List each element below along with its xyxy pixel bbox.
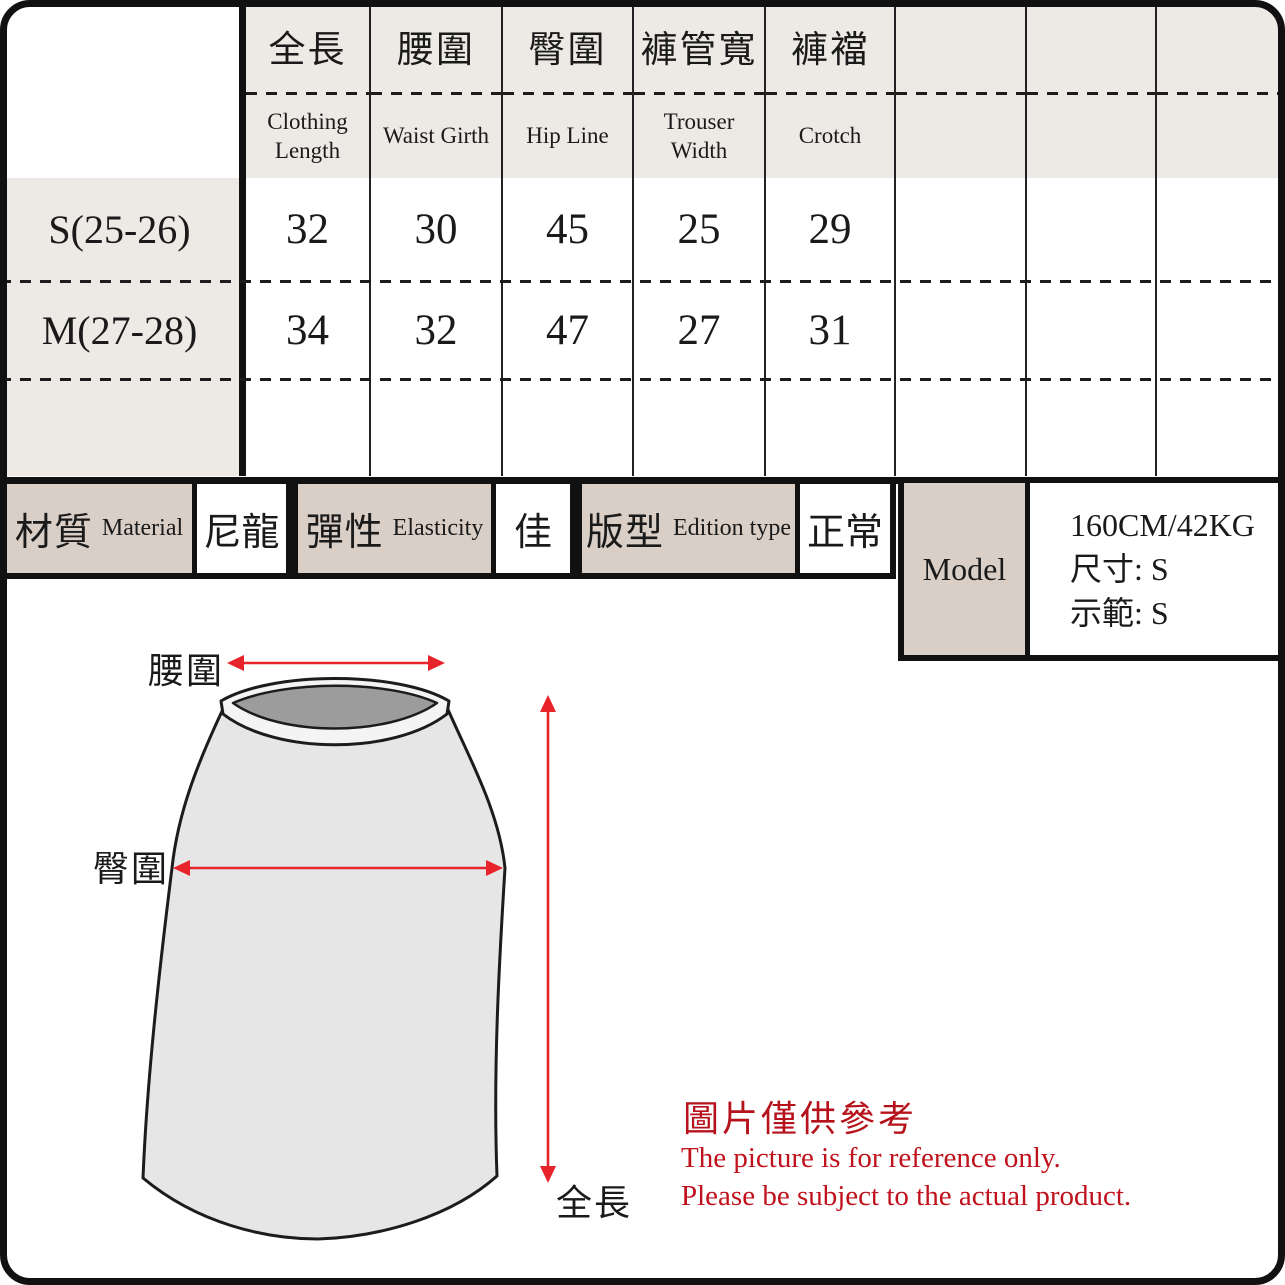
model-stats: 160CM/42KG bbox=[1070, 509, 1279, 541]
attribute-elasticity: 彈性 Elasticity 佳 bbox=[292, 484, 576, 579]
cell-value bbox=[766, 379, 896, 476]
cell-value bbox=[1157, 379, 1285, 476]
cell-value bbox=[1027, 281, 1157, 379]
attribute-label-en: Material bbox=[102, 515, 183, 542]
attribute-label-zh: 材質 bbox=[15, 501, 93, 556]
column-header-zh bbox=[896, 0, 1025, 92]
attribute-edition-type: 版型 Edition type 正常 bbox=[576, 484, 896, 579]
column-header-empty bbox=[896, 0, 1027, 178]
row-size-label: S(25-26) bbox=[0, 178, 246, 281]
waist-measure-label: 腰圍 bbox=[148, 642, 224, 694]
column-header-en bbox=[896, 95, 1025, 178]
cell-value: 45 bbox=[503, 178, 634, 281]
column-header-waist-girth: 腰圍 Waist Girth bbox=[371, 0, 503, 178]
cell-value: 32 bbox=[246, 178, 371, 281]
dashed-row-separator bbox=[0, 378, 1285, 381]
column-header-en: Waist Girth bbox=[371, 95, 501, 178]
row-size-label bbox=[0, 379, 246, 476]
cell-value bbox=[1027, 379, 1157, 476]
column-header-zh bbox=[1157, 0, 1285, 92]
cell-value bbox=[371, 379, 503, 476]
column-header-zh: 臀圍 bbox=[503, 0, 632, 92]
attribute-material: 材質 Material 尼龍 bbox=[0, 484, 292, 579]
table-row-empty bbox=[0, 379, 1285, 476]
cell-value: 30 bbox=[371, 178, 503, 281]
cell-value: 27 bbox=[634, 281, 766, 379]
cell-value: 47 bbox=[503, 281, 634, 379]
attribute-value: 正常 bbox=[800, 484, 890, 573]
column-header-en: Trouser Width bbox=[634, 95, 764, 178]
cell-value bbox=[1027, 178, 1157, 281]
column-header-zh: 全長 bbox=[246, 0, 369, 92]
column-header-zh: 褲管寬 bbox=[634, 0, 764, 92]
cell-value: 29 bbox=[766, 178, 896, 281]
disclaimer-zh: 圖片僅供參考 bbox=[683, 1090, 917, 1142]
column-header-en: Crotch bbox=[766, 95, 894, 178]
attribute-label-zh: 彈性 bbox=[306, 501, 384, 556]
column-header-zh: 褲襠 bbox=[766, 0, 894, 92]
size-chart-sheet: 全長 Clothing Length 腰圍 Waist Girth 臀圍 Hip… bbox=[0, 0, 1285, 1285]
model-size: 尺寸: S bbox=[1070, 553, 1279, 585]
cell-value: 31 bbox=[766, 281, 896, 379]
column-header-empty bbox=[1157, 0, 1285, 178]
waist-arrow bbox=[227, 655, 445, 671]
attribute-value: 佳 bbox=[496, 484, 570, 573]
column-header-en: Clothing Length bbox=[246, 95, 369, 178]
cell-value bbox=[634, 379, 766, 476]
dashed-row-separator bbox=[0, 280, 1285, 283]
size-table-header-row: 全長 Clothing Length 腰圍 Waist Girth 臀圍 Hip… bbox=[0, 0, 1285, 178]
column-header-en bbox=[1157, 95, 1285, 178]
cell-value bbox=[1157, 281, 1285, 379]
column-header-zh: 腰圍 bbox=[371, 0, 501, 92]
column-header-en: Hip Line bbox=[503, 95, 632, 178]
attribute-value: 尼龍 bbox=[197, 484, 286, 573]
attribute-label: 彈性 Elasticity bbox=[298, 484, 496, 573]
model-label: Model bbox=[904, 483, 1030, 655]
column-header-en bbox=[1027, 95, 1155, 178]
skirt-body bbox=[143, 705, 505, 1239]
hip-measure-label: 臀圍 bbox=[93, 840, 169, 892]
cell-value bbox=[1157, 178, 1285, 281]
column-header-empty bbox=[1027, 0, 1157, 178]
attribute-label-en: Elasticity bbox=[393, 515, 484, 542]
length-measure-label: 全長 bbox=[556, 1174, 632, 1226]
attribute-label-zh: 版型 bbox=[586, 501, 664, 556]
model-details: 160CM/42KG 尺寸: S 示範: S bbox=[1030, 483, 1279, 655]
column-header-clothing-length: 全長 Clothing Length bbox=[246, 0, 371, 178]
disclaimer-en-line2: Please be subject to the actual product. bbox=[681, 1178, 1131, 1216]
size-table: 全長 Clothing Length 腰圍 Waist Girth 臀圍 Hip… bbox=[0, 0, 1285, 476]
disclaimer-en: The picture is for reference only. Pleas… bbox=[681, 1140, 1131, 1215]
cell-value: 32 bbox=[371, 281, 503, 379]
disclaimer-en-line1: The picture is for reference only. bbox=[681, 1140, 1131, 1178]
model-info-box: Model 160CM/42KG 尺寸: S 示範: S bbox=[898, 477, 1285, 661]
attribute-label: 版型 Edition type bbox=[582, 484, 800, 573]
attribute-label: 材質 Material bbox=[6, 484, 197, 573]
attribute-band: 材質 Material 尼龍 彈性 Elasticity 佳 版型 Editio… bbox=[0, 484, 896, 579]
table-row-size-m: M(27-28) 34 32 47 27 31 bbox=[0, 281, 1285, 379]
cell-value bbox=[896, 178, 1027, 281]
column-header-trouser-width: 褲管寬 Trouser Width bbox=[634, 0, 766, 178]
sheet-frame: 全長 Clothing Length 腰圍 Waist Girth 臀圍 Hip… bbox=[0, 0, 1285, 1285]
cell-value bbox=[246, 379, 371, 476]
cell-value bbox=[896, 281, 1027, 379]
attribute-label-en: Edition type bbox=[673, 515, 791, 542]
cell-value: 34 bbox=[246, 281, 371, 379]
cell-value: 25 bbox=[634, 178, 766, 281]
row-size-label: M(27-28) bbox=[0, 281, 246, 379]
size-table-corner-cell bbox=[0, 0, 246, 178]
length-arrow bbox=[540, 695, 556, 1183]
cell-value bbox=[503, 379, 634, 476]
column-header-hip-line: 臀圍 Hip Line bbox=[503, 0, 634, 178]
column-header-zh bbox=[1027, 0, 1155, 92]
table-row-size-s: S(25-26) 32 30 45 25 29 bbox=[0, 178, 1285, 281]
cell-value bbox=[896, 379, 1027, 476]
model-demo: 示範: S bbox=[1070, 597, 1279, 629]
column-header-crotch: 褲襠 Crotch bbox=[766, 0, 896, 178]
